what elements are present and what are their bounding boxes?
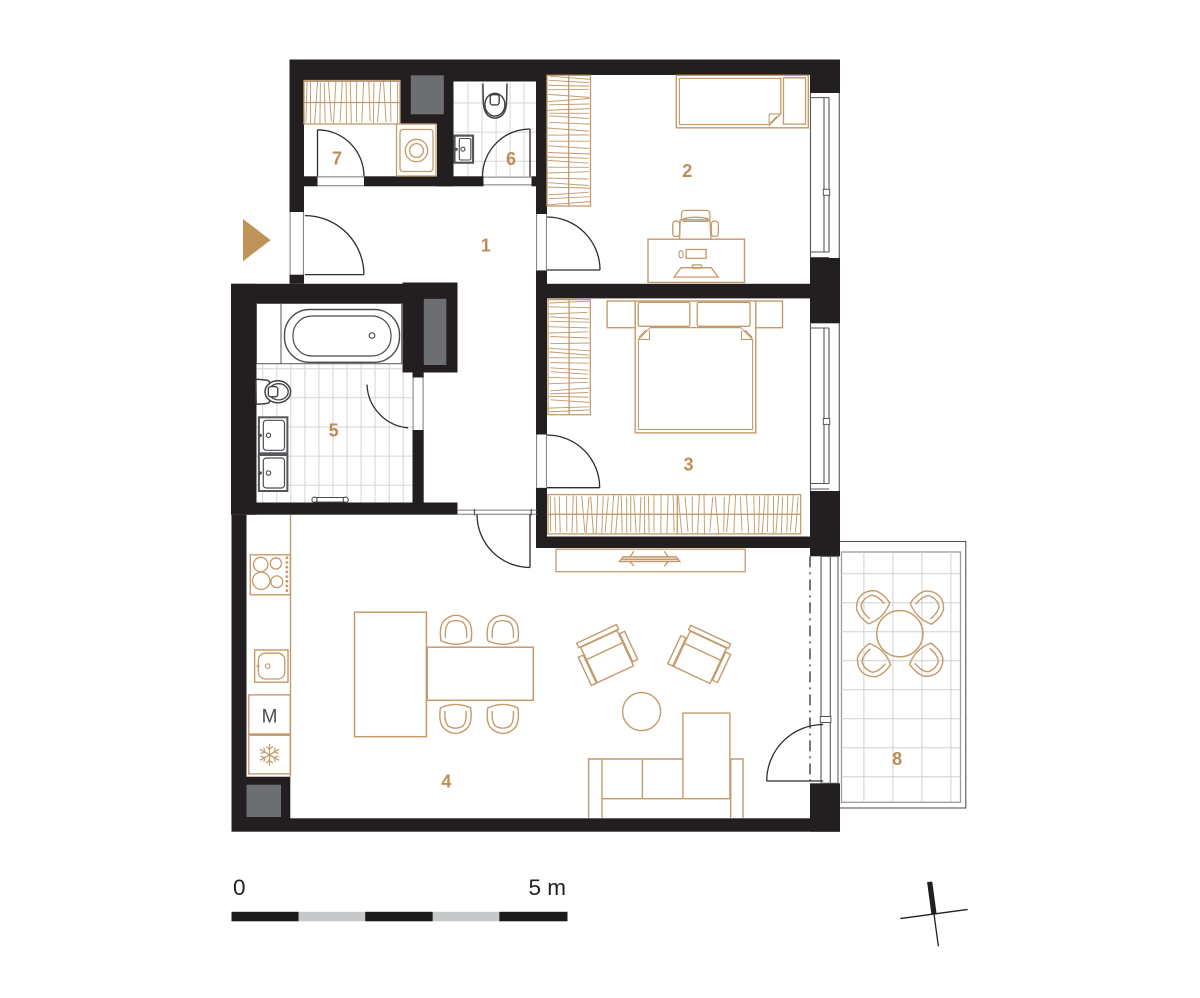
- svg-text:2: 2: [682, 161, 692, 181]
- svg-text:8: 8: [892, 749, 902, 769]
- svg-text:5: 5: [329, 421, 339, 441]
- svg-text:1: 1: [481, 236, 491, 256]
- svg-text:M: M: [262, 707, 278, 728]
- svg-text:3: 3: [683, 455, 693, 475]
- svg-text:5 m: 5 m: [528, 875, 566, 900]
- svg-text:6: 6: [506, 149, 516, 169]
- svg-text:7: 7: [332, 149, 342, 169]
- svg-text:4: 4: [441, 772, 451, 792]
- svg-text:0: 0: [233, 875, 246, 900]
